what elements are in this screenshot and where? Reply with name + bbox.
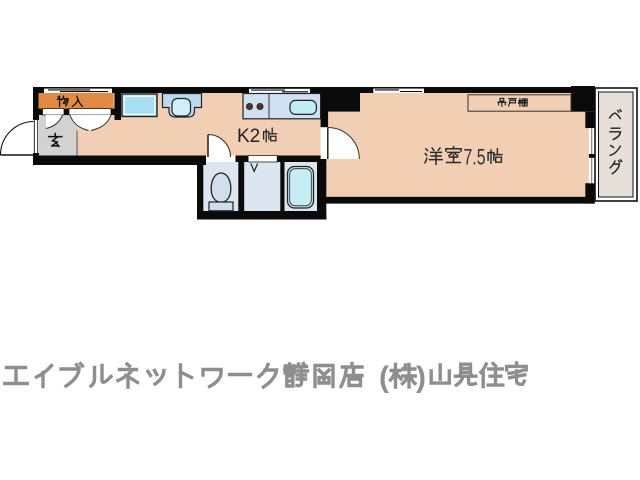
- svg-text:K2: K2: [237, 126, 260, 147]
- svg-text:): ): [416, 361, 426, 394]
- svg-text:7.5: 7.5: [464, 145, 486, 170]
- svg-text:(: (: [379, 361, 389, 394]
